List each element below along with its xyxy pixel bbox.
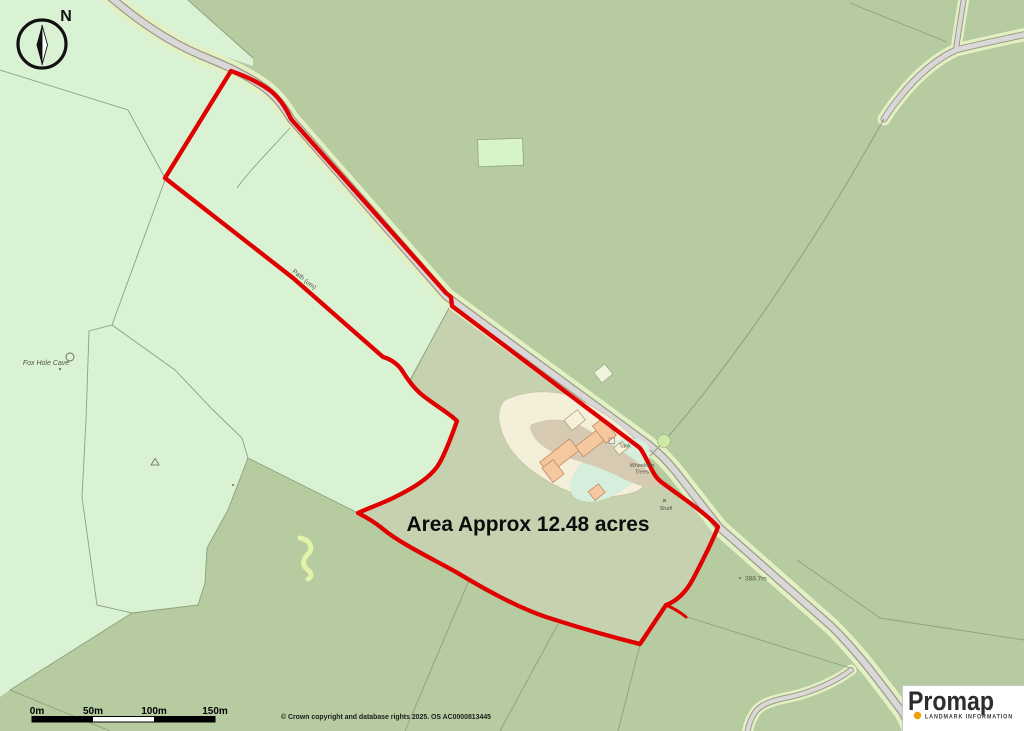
logo-subtitle: LANDMARK INFORMATION xyxy=(925,714,1013,721)
fox-hole-cave-label: Fox Hole Cave xyxy=(23,360,69,367)
scale-tick-100: 100m xyxy=(141,706,167,717)
scale-tick-50: 50m xyxy=(83,706,103,717)
logo-dot-icon xyxy=(914,712,921,719)
scale-tick-0: 0m xyxy=(30,706,45,717)
scale-bar-seg1 xyxy=(32,717,93,723)
copyright-text: © Crown copyright and database rights 20… xyxy=(281,712,491,721)
scale-tick-150: 150m xyxy=(202,706,228,717)
wheeldon-trees-label-1: Wheeldon xyxy=(630,463,655,469)
promap-logo: Promap LANDMARK INFORMATION xyxy=(903,686,1024,731)
area-label: Area Approx 12.48 acres xyxy=(407,512,650,536)
tank-label: Tank xyxy=(619,444,631,450)
bush xyxy=(658,435,671,448)
logo-brand: Promap xyxy=(908,686,994,716)
field-patch xyxy=(478,138,524,167)
site-plan-map: Fox Hole Cave Path (um) Tank Wheeldon Tr… xyxy=(0,0,1024,731)
wheeldon-trees-label-2: Trees xyxy=(635,470,649,476)
map-canvas: Fox Hole Cave Path (um) Tank Wheeldon Tr… xyxy=(0,0,1024,731)
cave-dot xyxy=(59,368,61,370)
spot-height-label: 388.7m xyxy=(745,576,767,583)
shaft-label: Shaft xyxy=(660,506,673,512)
scale-bar-seg3 xyxy=(154,717,215,723)
point-dot xyxy=(232,484,234,486)
compass-north-label: N xyxy=(60,8,72,25)
spot-height-dot xyxy=(739,577,741,579)
